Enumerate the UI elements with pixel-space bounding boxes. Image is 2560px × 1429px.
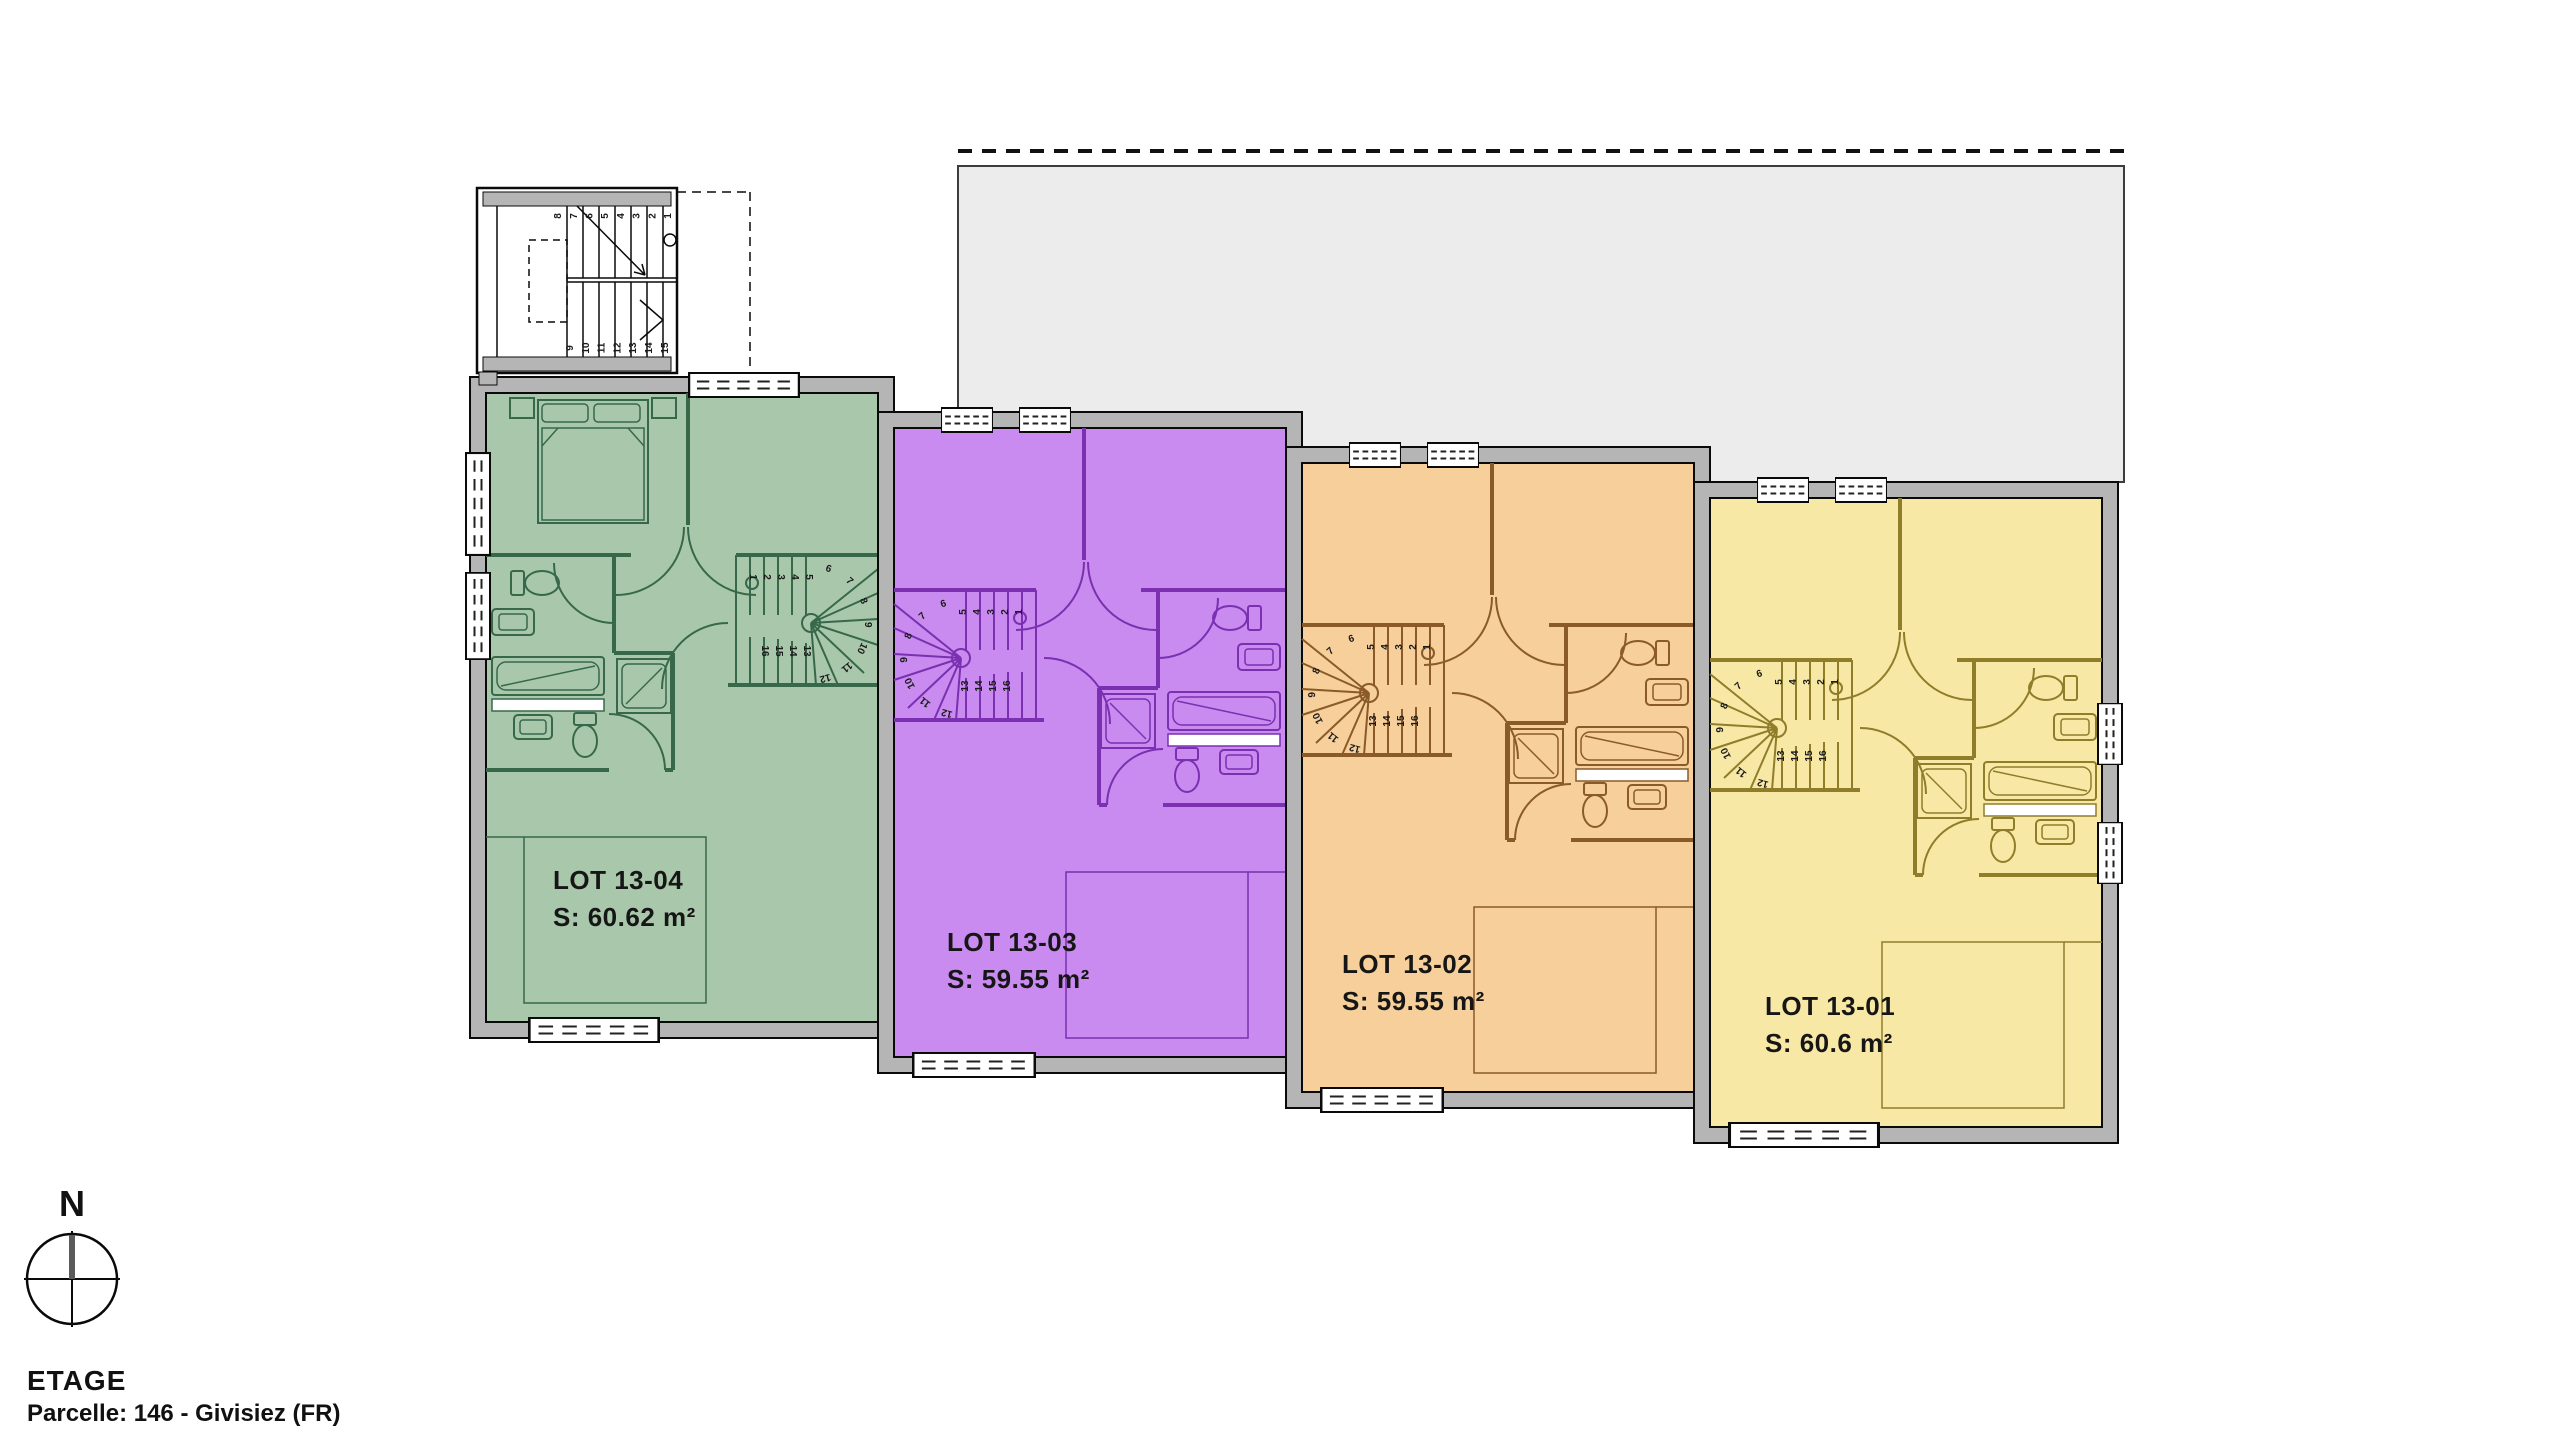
window (1758, 478, 1809, 502)
stair-tread-number: 1 (747, 574, 758, 580)
stair-tread-number: 4 (1788, 679, 1799, 685)
stair-tread-number: 5 (1366, 644, 1377, 650)
stair-tread-number: 9 (862, 622, 873, 628)
unit-lot-13-02: LOT 13-02 S: 59.55 m² 123456789101112131… (1286, 447, 1710, 1108)
stair-tread-number: 5 (958, 609, 969, 615)
stair-tread-number: 13 (1776, 750, 1787, 762)
stair-tread-number: 15 (773, 645, 784, 657)
unit-lot-13-04: LOT 13-04 S: 60.62 m² 123456789101112131… (470, 377, 894, 1038)
stair-tread-number: 15 (1804, 750, 1815, 762)
unit-label: LOT 13-01 (1765, 991, 1895, 1021)
stair-tread-number: 13 (960, 680, 971, 692)
window (689, 373, 799, 397)
stair-tread-number: 10 (581, 342, 592, 354)
stair-tread-number: 2 (647, 213, 658, 219)
stair-tread-number: 3 (775, 574, 786, 580)
stair-tread-number: 15 (1396, 715, 1407, 727)
compass: N (24, 1183, 120, 1327)
stair-tread-number: 2 (1816, 679, 1827, 685)
stair-tread-number: 2 (1000, 609, 1011, 615)
unit-area: S: 59.55 m² (947, 964, 1090, 994)
stair-tread-number: 1 (1014, 609, 1025, 615)
stair-tread-number: 14 (1790, 750, 1801, 762)
stair-tread-number: 2 (1408, 644, 1419, 650)
stair-tread-number: 5 (1774, 679, 1785, 685)
window (466, 573, 490, 659)
window (1020, 408, 1071, 432)
window (2098, 823, 2122, 884)
stair-tread-number: 7 (569, 213, 580, 219)
plan-title: ETAGE (27, 1365, 126, 1396)
parcel-subtitle: Parcelle: 146 - Givisiez (FR) (27, 1400, 340, 1427)
unit-area: S: 60.62 m² (553, 902, 696, 932)
window (1350, 443, 1401, 467)
window (2098, 704, 2122, 765)
stair-tread-number: 9 (565, 345, 576, 351)
stair-tread-number: 12 (612, 342, 623, 354)
unit-area: S: 60.6 m² (1765, 1028, 1893, 1058)
stair-tread-number: 3 (1394, 644, 1405, 650)
window (942, 408, 993, 432)
stair-tread-number: 14 (644, 342, 655, 354)
stair-tread-number: 14 (787, 645, 798, 657)
unit-area: S: 59.55 m² (1342, 986, 1485, 1016)
unit-label: LOT 13-04 (553, 865, 683, 895)
stair-tread-number: 13 (1368, 715, 1379, 727)
stair-tread-number: 1 (1422, 644, 1433, 650)
stair-tread-number: 3 (986, 609, 997, 615)
stair-tread-number: 5 (600, 213, 611, 219)
stair-tread-number: 9 (1307, 691, 1318, 697)
stair-tread-number: 2 (761, 574, 772, 580)
stair-tread-number: 3 (632, 213, 643, 219)
window (1730, 1123, 1879, 1147)
window (1321, 1088, 1443, 1112)
stair-tread-number: 16 (759, 645, 770, 657)
title-block: ETAGE Parcelle: 146 - Givisiez (FR) (27, 1365, 340, 1427)
stair-tread-number: 16 (1002, 680, 1013, 692)
stair-tread-number: 1 (1830, 679, 1841, 685)
window (1428, 443, 1479, 467)
stair-tread-number: 13 (801, 645, 812, 657)
stair-tread-number: 4 (972, 609, 983, 615)
window (1836, 478, 1887, 502)
stair-tread-number: 3 (1802, 679, 1813, 685)
unit-label: LOT 13-03 (947, 927, 1077, 957)
stair-tread-number: 9 (899, 656, 910, 662)
stair-tread-number: 15 (660, 342, 671, 354)
stair-tread-number: 14 (1382, 715, 1393, 727)
stair-tread-number: 9 (1715, 726, 1726, 732)
stair-tread-number: 5 (803, 574, 814, 580)
unit-lot-13-01: LOT 13-01 S: 60.6 m² 1234567891011121314… (1694, 482, 2118, 1143)
stair-tread-number: 11 (597, 342, 608, 353)
window (529, 1018, 658, 1042)
stair-tread-number: 6 (585, 213, 596, 219)
floor-plan-page: LOT 13-04 S: 60.62 m² 123456789101112131… (0, 0, 2560, 1429)
window (913, 1053, 1035, 1077)
unit-lot-13-03: LOT 13-03 S: 59.55 m² 123456789101112131… (878, 412, 1302, 1073)
stair-tread-number: 4 (616, 213, 627, 219)
stair-tread-number: 4 (789, 574, 800, 580)
stair-tread-number: 8 (553, 213, 564, 219)
stair-tread-number: 14 (974, 680, 985, 692)
unit-label: LOT 13-02 (1342, 949, 1472, 979)
stair-tread-number: 15 (988, 680, 999, 692)
window (466, 453, 490, 555)
floor-plan: LOT 13-04 S: 60.62 m² 123456789101112131… (0, 0, 2560, 1429)
external-staircase: 12345678 9101112131415 (477, 188, 750, 385)
stair-tread-number: 4 (1380, 644, 1391, 650)
stair-tread-number: 1 (663, 213, 674, 219)
stair-tread-number: 16 (1818, 750, 1829, 762)
external-stair-numbers-lower: 9101112131415 (565, 342, 671, 354)
stair-tread-number: 13 (628, 342, 639, 354)
wall-connector (479, 372, 497, 385)
stair-tread-number: 16 (1410, 715, 1421, 727)
compass-north-label: N (59, 1183, 85, 1224)
